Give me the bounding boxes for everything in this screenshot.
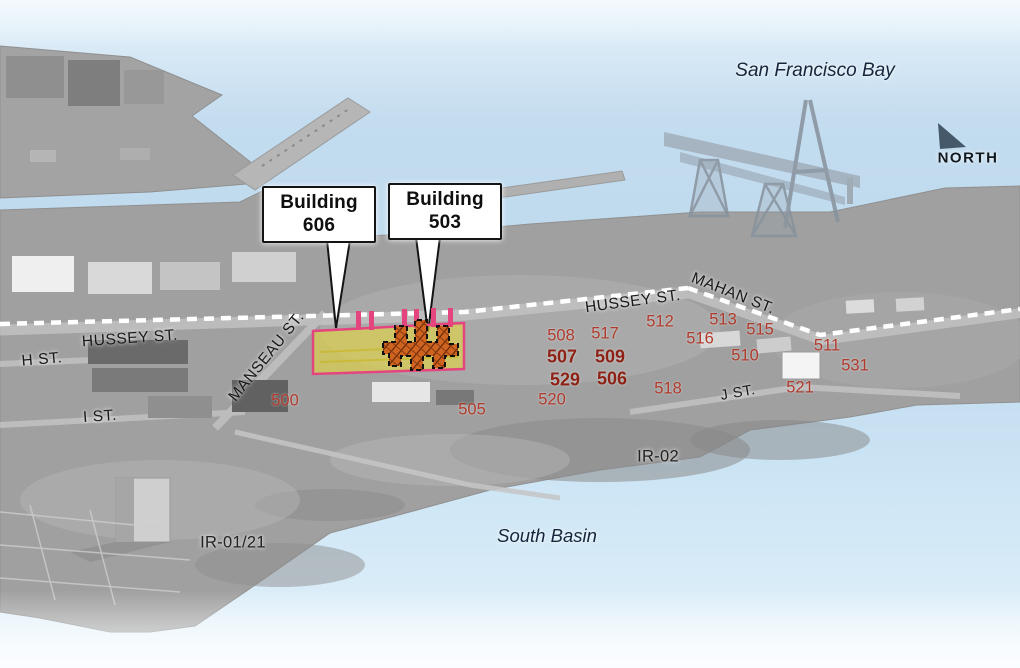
label-ir-02: IR-02 [637,448,679,467]
north-arrow-icon [938,123,966,149]
site-number-508: 508 [547,327,575,346]
site-number-517: 517 [591,325,619,344]
site-number-531: 531 [841,357,869,376]
top-haze [0,0,1020,46]
callout-building-503: Building 503 [388,183,502,240]
street-h: H ST. [21,349,63,370]
site-number-507: 507 [547,347,577,368]
callout-building-606: Building 606 [262,186,376,243]
street-i: I ST. [82,407,117,427]
site-number-516: 516 [686,330,714,349]
north-label: NORTH [938,150,999,167]
label-san-francisco-bay: San Francisco Bay [735,60,894,82]
callout-503-line2: 503 [429,212,461,235]
callout-606-line1: Building [280,192,358,215]
site-number-512: 512 [646,313,674,332]
map-canvas: { "map": { "title_region": "San Francisc… [0,0,1020,668]
site-number-506: 506 [597,369,627,390]
callout-503-line1: Building [406,189,484,212]
site-number-500: 500 [271,392,299,411]
site-number-520: 520 [538,391,566,410]
site-number-505: 505 [458,401,486,420]
label-ir-01-21: IR-01/21 [200,534,266,553]
site-number-513: 513 [709,311,737,330]
callout-606-line2: 606 [303,215,335,238]
site-number-521: 521 [786,379,814,398]
site-number-511: 511 [814,337,840,356]
site-number-518: 518 [654,380,682,399]
site-number-509: 509 [595,347,625,368]
site-number-515: 515 [746,321,774,340]
site-number-529: 529 [550,370,580,391]
bottom-haze [0,590,1020,668]
label-south-basin: South Basin [497,525,597,547]
site-number-510: 510 [731,347,759,366]
